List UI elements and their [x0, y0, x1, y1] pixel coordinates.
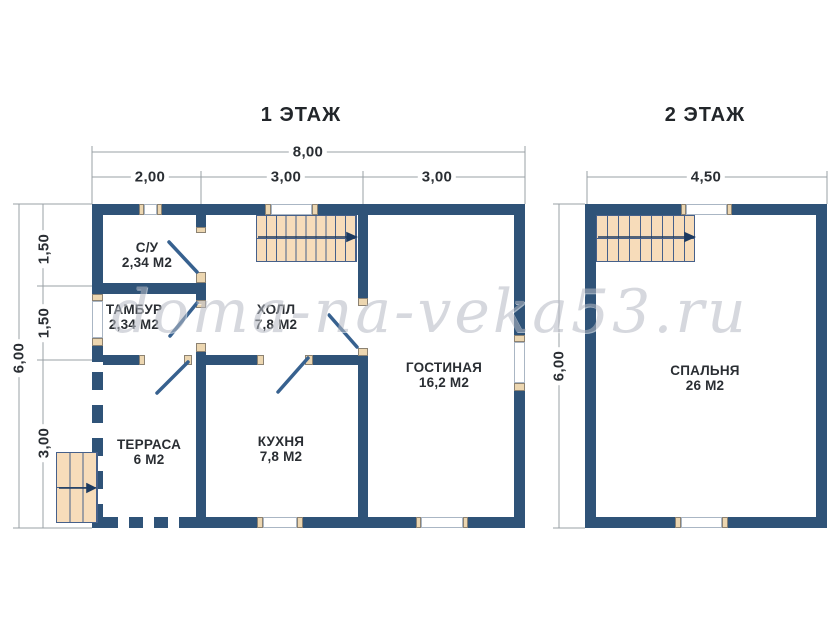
window-spalnya-top-jamb-left — [681, 204, 686, 215]
door-kuhnya-jamb-left — [257, 355, 264, 365]
dim-floor2-width-total: 4,50 — [687, 169, 725, 186]
window-stairs-jamb-right — [312, 204, 318, 215]
room-name-terrasa: ТЕРРАСА — [117, 437, 181, 452]
floor2-title: 2 ЭТАЖ — [665, 104, 745, 127]
room-label-su: С/У 2,34 М2 — [122, 240, 172, 270]
window-spalnya-bottom — [681, 517, 722, 528]
stairs-floor2 — [596, 215, 695, 262]
room-area-gostinaya: 16,2 М2 — [406, 375, 482, 390]
wall-tambur-terrasa-left — [103, 355, 139, 365]
room-label-gostinaya: ГОСТИНАЯ 16,2 М2 — [406, 360, 482, 390]
dim-floor1-width-seg2: 3,00 — [267, 169, 305, 186]
room-area-kuhnya: 7,8 М2 — [258, 449, 304, 464]
door-su-jamb-top — [196, 227, 206, 233]
door-gostinaya-jamb-bottom — [358, 348, 368, 356]
wall-floor1-left-mid — [92, 346, 103, 362]
room-name-gostinaya: ГОСТИНАЯ — [406, 360, 482, 375]
room-name-su: С/У — [122, 240, 172, 255]
room-label-terrasa: ТЕРРАСА 6 М2 — [117, 437, 181, 467]
wall-kuhnya-top-left — [206, 355, 257, 365]
room-area-su: 2,34 М2 — [122, 255, 172, 270]
wall-su-right-upper — [196, 215, 206, 227]
door-kuhnya-jamb-right — [305, 355, 313, 365]
wall-kuhnya-left — [196, 352, 206, 517]
entry-opening-left-wall — [92, 301, 103, 338]
window-gostinaya-bottom-jamb-left — [416, 517, 421, 528]
dim-floor1-height-seg2: 1,50 — [36, 304, 53, 342]
window-kuhnya-bottom — [263, 517, 297, 528]
wall-gostinaya-left-lower — [358, 356, 368, 517]
window-spalnya-top — [686, 204, 727, 215]
floor-plan-canvas: 1 ЭТАЖ 2 ЭТАЖ — [0, 0, 840, 630]
door-leaf-su — [169, 242, 197, 272]
room-area-spalnya: 26 М2 — [670, 378, 739, 393]
window-spalnya-bottom-jamb-left — [675, 517, 681, 528]
wall-floor1-left-upper — [92, 204, 103, 294]
room-area-terrasa: 6 М2 — [117, 452, 181, 467]
window-su-top — [144, 204, 157, 215]
wall-floor1-bottom — [193, 517, 525, 528]
door-leaf-terrasa — [157, 362, 188, 393]
door-terrasa-jamb-right — [184, 355, 192, 365]
wall-floor1-right-lower — [514, 391, 525, 528]
dim-floor1-height-seg1: 1,50 — [36, 230, 53, 268]
room-label-kuhnya: КУХНЯ 7,8 М2 — [258, 434, 304, 464]
window-gostinaya-bottom — [421, 517, 463, 528]
window-su-jamb-left — [139, 204, 144, 215]
dim-floor1-height-total: 6,00 — [11, 339, 28, 377]
dim-floor1-height-seg3: 3,00 — [36, 424, 53, 462]
wall-kuhnya-top-right — [313, 355, 358, 365]
window-su-jamb-right — [157, 204, 162, 215]
dim-floor2-height-total: 6,00 — [551, 347, 568, 385]
door-terrasa-jamb-left — [139, 355, 145, 365]
window-gostinaya-bottom-jamb-right — [463, 517, 468, 528]
stairs-entrance-exterior — [56, 452, 98, 523]
stairs-floor1 — [256, 215, 357, 262]
window-spalnya-top-jamb-right — [727, 204, 732, 215]
window-stairs-jamb-left — [265, 204, 271, 215]
door-leaf-kuhnya — [278, 358, 308, 392]
room-name-spalnya: СПАЛЬНЯ — [670, 363, 739, 378]
wall-floor1-terrace-edge-bottom-dashed — [104, 517, 193, 528]
floor1-title: 1 ЭТАЖ — [261, 104, 341, 127]
window-kuhnya-jamb-right — [297, 517, 303, 528]
entry-opening-jamb-bottom — [92, 338, 103, 346]
room-name-kuhnya: КУХНЯ — [258, 434, 304, 449]
wall-floor2-left — [585, 204, 596, 528]
wall-floor2-right — [816, 204, 827, 528]
dim-floor1-width-total: 8,00 — [289, 144, 327, 161]
window-gostinaya-jamb-bottom — [514, 383, 525, 391]
window-spalnya-bottom-jamb-right — [722, 517, 728, 528]
window-gostinaya-right — [514, 342, 525, 383]
entry-opening-jamb-top — [92, 294, 103, 301]
dim-floor1-width-seg3: 3,00 — [418, 169, 456, 186]
dim-floor1-width-seg1: 2,00 — [131, 169, 169, 186]
room-label-spalnya: СПАЛЬНЯ 26 М2 — [670, 363, 739, 393]
window-kuhnya-jamb-left — [257, 517, 263, 528]
site-watermark: doma-na-veka53.ru — [111, 277, 748, 347]
window-stairs-top — [271, 204, 312, 215]
